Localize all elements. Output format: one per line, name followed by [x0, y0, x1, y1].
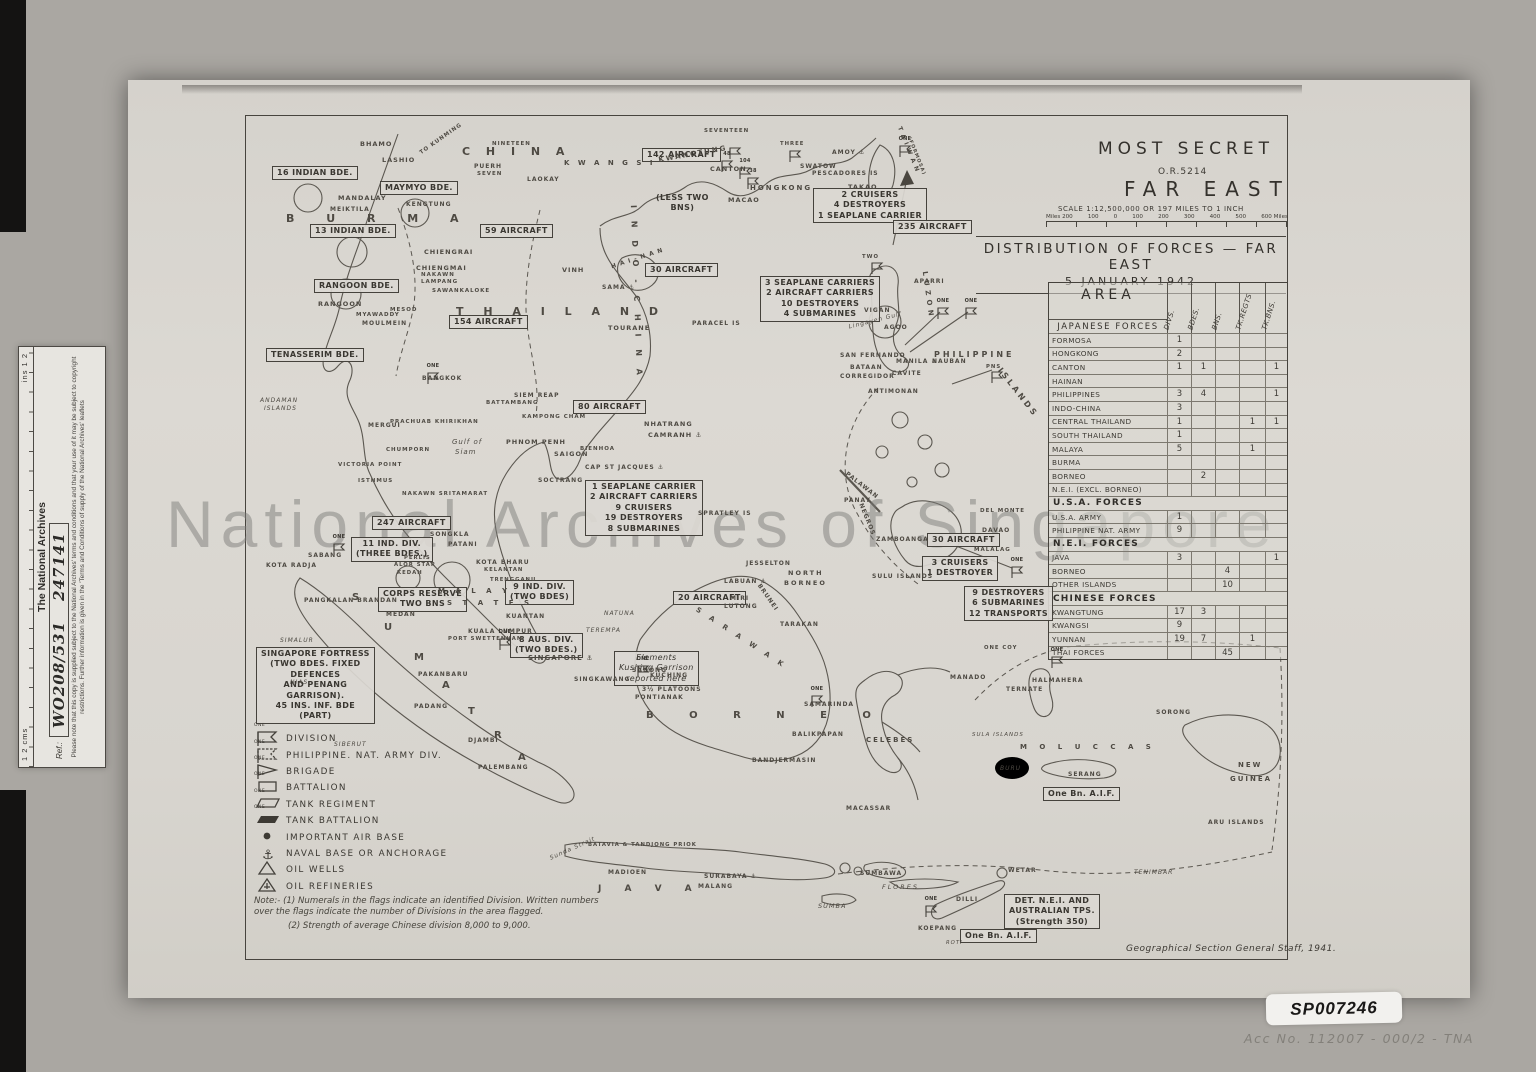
unit-flag: ONE — [1046, 648, 1068, 672]
place-label: Gulf of — [452, 438, 482, 446]
value-cell — [1265, 334, 1287, 347]
map-annotation: One Bn. A.I.F. — [1043, 787, 1120, 801]
place-label: KUCHING — [650, 672, 688, 679]
area-cell: HAINAN — [1049, 377, 1167, 386]
note-text: Note:- (1) Numerals in the flags indicat… — [254, 896, 599, 919]
area-cell: MALAYA — [1049, 445, 1167, 454]
place-label: U — [384, 622, 393, 633]
unit-flag: ONE — [328, 535, 350, 559]
value-cell: 5 — [1167, 443, 1191, 456]
place-label: NINETEEN — [492, 141, 531, 147]
place-label: NAUBAN — [932, 358, 967, 365]
legend-symbol-tag: ONE — [254, 772, 265, 777]
place-label: NHATRANG — [644, 420, 693, 428]
scale-tick: 600 Miles — [1261, 214, 1288, 220]
place-label: LUTONG — [724, 603, 758, 610]
map-subtitle: DISTRIBUTION OF FORCES — FAR EAST — [976, 241, 1286, 273]
table-row: OTHER ISLANDS10 — [1049, 578, 1287, 592]
flag-icon — [920, 902, 942, 921]
section-header-cell: N.E.I. FORCES — [1049, 539, 1287, 549]
place-label: WETAR — [1008, 867, 1037, 874]
area-cell: OTHER ISLANDS — [1049, 580, 1167, 589]
value-cell: 1 — [1167, 511, 1191, 524]
japanese-forces-header: JAPANESE FORCES — [1049, 319, 1167, 333]
flag-icon — [986, 368, 1008, 387]
area-cell: YUNNAN — [1049, 635, 1167, 644]
ref-value-box: WO208/531 247141 — [49, 523, 69, 737]
map-annotation: 2 CRUISERS4 DESTROYERS1 SEAPLANE CARRIER — [813, 188, 927, 223]
note-text: (2) Strength of average Chinese division… — [254, 921, 599, 932]
place-label: SIEM REAP — [514, 392, 559, 399]
place-label: NEW — [1238, 761, 1262, 769]
place-label: M O L U C C A S — [1020, 743, 1156, 751]
value-cell — [1191, 511, 1215, 524]
flag-icon — [866, 259, 888, 278]
value-cell — [1265, 402, 1287, 415]
section-header-cell: U.S.A. FORCES — [1049, 498, 1287, 508]
place-label: SOCTRANG — [538, 477, 583, 484]
value-cell — [1265, 565, 1287, 578]
value-cell: 9 — [1167, 524, 1191, 537]
value-cell — [1191, 484, 1215, 497]
place-label: Siam — [455, 448, 477, 456]
place-label: SUMBA — [818, 902, 846, 910]
map-annotation: 3 SEAPLANE CARRIERS2 AIRCRAFT CARRIERS10… — [760, 276, 880, 322]
place-label: KENGTUNG — [406, 201, 452, 208]
place-label: SIMALUR — [280, 637, 314, 644]
flag-icon — [932, 304, 954, 323]
place-label: KAMPONG CHAM — [522, 414, 586, 420]
ruler-cms: 1 2 cms — [20, 728, 33, 761]
legend-symbol-tag: ONE — [254, 805, 265, 810]
place-label: CORREGIDOR — [840, 373, 895, 380]
place-label: S T A T E S — [447, 599, 533, 607]
map-annotation: 13 INDIAN BDE. — [310, 224, 396, 238]
value-cell: 2 — [1167, 348, 1191, 361]
place-label: KUANTAN — [506, 613, 545, 620]
place-label: 3½ PLATOONS — [642, 686, 702, 693]
area-cell: N.E.I. (EXCL. BORNEO) — [1049, 485, 1167, 494]
value-cell — [1215, 429, 1239, 442]
place-label: VINH — [562, 266, 584, 274]
table-row: N.E.I. (EXCL. BORNEO) — [1049, 483, 1287, 497]
value-cell — [1167, 484, 1191, 497]
place-label: SONGKLA — [430, 531, 469, 538]
unit-flag: ONE — [422, 364, 444, 388]
map-annotation: 30 AIRCRAFT — [645, 263, 718, 277]
place-label: KOEPANG — [918, 925, 957, 932]
scale-tick: 300 — [1184, 214, 1195, 220]
value-cell — [1215, 402, 1239, 415]
place-label: PONTIANAK — [635, 694, 684, 701]
value-cell: 10 — [1215, 579, 1239, 592]
unit-flag: ONE — [1006, 558, 1028, 582]
place-label: PUERH — [474, 163, 502, 170]
place-label: BURU — [1000, 765, 1021, 772]
place-label: PAKANBARU — [418, 671, 469, 678]
place-label: ZAMBOANGA — [876, 536, 929, 543]
value-cell: 19 — [1167, 633, 1191, 646]
value-cell: 1 — [1265, 416, 1287, 429]
ref-value-2: 247141 — [50, 532, 68, 601]
map-credit: Geographical Section General Staff, 1941… — [1126, 944, 1336, 954]
scale-tick: 500 — [1235, 214, 1246, 220]
area-header: AREA — [1049, 283, 1167, 303]
place-label: CELEBES — [866, 736, 914, 744]
value-cell — [1265, 524, 1287, 537]
map-annotation: 3 CRUISERS1 DESTROYER — [922, 556, 998, 581]
place-label: T — [468, 706, 476, 717]
place-label: DJAMBI — [468, 737, 499, 744]
classification-heading: MOST SECRET — [1098, 139, 1274, 159]
flag-icon — [494, 635, 516, 654]
map-annotation: 9 DESTROYERS6 SUBMARINES12 TRANSPORTS — [964, 586, 1053, 621]
place-label: SINGAPORE ⚓ — [528, 654, 594, 662]
place-label: MOULMEIN — [362, 320, 407, 327]
legend-symbol-tag: ONE — [254, 756, 265, 761]
place-label: SULU ISLANDS — [872, 573, 933, 580]
value-cell — [1215, 524, 1239, 537]
legend-item-label: BATTALION — [286, 783, 347, 793]
area-cell: HONGKONG — [1049, 349, 1167, 358]
value-cell — [1239, 388, 1265, 401]
area-cell: PHILIPPINE NAT. ARMY — [1049, 526, 1167, 535]
value-cell — [1215, 416, 1239, 429]
place-label: BORNEO — [784, 579, 827, 587]
value-cell — [1239, 361, 1265, 374]
table-row: BORNEO4 — [1049, 564, 1287, 578]
place-label: SERANG — [1068, 771, 1102, 778]
scale-tick: Miles 200 — [1046, 214, 1073, 220]
place-label: MALANG — [698, 883, 733, 890]
map-annotation: 16 INDIAN BDE. — [272, 166, 358, 180]
table-row: KWANGTUNG173 — [1049, 605, 1287, 619]
place-label: DILLI — [956, 896, 978, 903]
scale-bar: Miles 2001000100200300400500600 Miles — [1046, 214, 1288, 227]
place-label: SEVENTEEN — [704, 128, 749, 134]
place-label: BIENHOA — [580, 446, 615, 452]
table-row: HAINAN — [1049, 374, 1287, 388]
value-cell — [1265, 456, 1287, 469]
scale-tick: 200 — [1158, 214, 1169, 220]
value-cell — [1215, 361, 1239, 374]
unit-flag — [866, 259, 888, 278]
place-label: KOTA RADJA — [266, 562, 317, 569]
place-label: LASHIO — [382, 156, 415, 164]
place-label: PESCADORES IS — [812, 170, 879, 177]
value-cell: 1 — [1265, 552, 1287, 565]
value-cell: 1 — [1265, 361, 1287, 374]
place-label: BANDJERMASIN — [752, 757, 816, 764]
value-cell: 1 — [1167, 416, 1191, 429]
value-cell: 17 — [1167, 606, 1191, 619]
unit-flag: ONE — [494, 630, 516, 654]
value-cell — [1215, 334, 1239, 347]
value-cell — [1215, 606, 1239, 619]
place-label: ISLANDS — [264, 405, 297, 412]
flag-icon — [328, 540, 350, 559]
scale-tick: 100 — [1132, 214, 1143, 220]
value-cell — [1239, 647, 1265, 660]
ref-label: Ref.: — [55, 742, 64, 759]
scanned-map-document: National Archives of Singapore MOST SECR… — [0, 0, 1536, 1072]
place-label: SAWANKALOKE — [432, 288, 490, 294]
place-label: SINGKAWANG — [574, 676, 630, 683]
place-label: MADIOEN — [608, 869, 647, 876]
value-cell — [1239, 552, 1265, 565]
place-label: MANADO — [950, 674, 986, 681]
table-row: INDO-CHINA3 — [1049, 401, 1287, 415]
legend-symbol-tag: ONE — [254, 789, 265, 794]
area-cell: FORMOSA — [1049, 336, 1167, 345]
table-row: CHINESE FORCES — [1049, 591, 1287, 605]
value-cell — [1239, 619, 1265, 632]
area-cell: CENTRAL THAILAND — [1049, 417, 1167, 426]
place-label: SIBERUT — [334, 741, 367, 748]
place-label: GUINEA — [1230, 775, 1272, 783]
unit-flag: ONE — [932, 299, 954, 323]
value-cell: 1 — [1239, 443, 1265, 456]
value-cell: 1 — [1167, 361, 1191, 374]
scale-tick: 100 — [1088, 214, 1099, 220]
value-cell: 2 — [1191, 470, 1215, 483]
value-cell — [1239, 484, 1265, 497]
value-cell: 4 — [1191, 388, 1215, 401]
column-header: TK.BNS. — [1265, 283, 1287, 333]
map-annotation: 80 AIRCRAFT — [573, 400, 646, 414]
value-cell: 1 — [1239, 416, 1265, 429]
legend-item-label: IMPORTANT AIR BASE — [286, 833, 405, 843]
place-label: KELANTAN — [484, 567, 523, 573]
value-cell: 1 — [1191, 361, 1215, 374]
ruler-ins: ins 1 2 — [20, 353, 33, 382]
ref-value: WO208/531 — [50, 621, 68, 728]
place-label: CAVITE — [892, 370, 922, 377]
unit-flag: ONE — [920, 897, 942, 921]
value-cell — [1167, 470, 1191, 483]
area-cell: PHILIPPINES — [1049, 390, 1167, 399]
value-cell — [1215, 348, 1239, 361]
place-label: TOURANE — [608, 324, 650, 332]
place-label: SULA ISLANDS — [972, 732, 1024, 738]
place-label: MACAO — [728, 196, 760, 204]
place-label: PRACHUAB KHIRIKHAN — [390, 419, 479, 425]
value-cell — [1265, 443, 1287, 456]
scan-crease — [182, 85, 1302, 94]
map-annotation: 59 AIRCRAFT — [480, 224, 553, 238]
unit-flag — [784, 147, 806, 166]
value-cell — [1215, 456, 1239, 469]
table-row: FORMOSA1 — [1049, 333, 1287, 347]
place-label: NORTH — [788, 569, 824, 577]
legend-item-label: PHILIPPINE. NAT. ARMY DIV. — [286, 751, 442, 761]
value-cell — [1191, 619, 1215, 632]
area-header-cell: AREA JAPANESE FORCES — [1049, 283, 1167, 333]
value-cell — [1265, 647, 1287, 660]
place-label: BATTAMBANG — [486, 400, 539, 406]
value-cell — [1239, 402, 1265, 415]
value-cell — [1191, 348, 1215, 361]
legend-item-label: TANK BATTALION — [286, 816, 380, 826]
value-cell: 1 — [1239, 633, 1265, 646]
place-label: SPRATLEY IS — [698, 510, 752, 517]
section-header-cell: CHINESE FORCES — [1049, 594, 1287, 604]
value-cell — [1215, 388, 1239, 401]
value-cell: 3 — [1167, 388, 1191, 401]
value-cell — [1191, 524, 1215, 537]
table-row: KWANGSI9 — [1049, 618, 1287, 632]
archive-ruler: 1 2 cms ins 1 2 — [19, 347, 34, 767]
value-cell: 9 — [1167, 619, 1191, 632]
table-row: SOUTH THAILAND1 — [1049, 428, 1287, 442]
place-label: HALMAHERA — [1032, 677, 1084, 684]
value-cell — [1239, 511, 1265, 524]
value-cell — [1215, 470, 1239, 483]
value-cell — [1239, 606, 1265, 619]
flag-icon — [784, 147, 806, 166]
value-cell — [1265, 579, 1287, 592]
legend-item-label: DIVISION — [286, 734, 337, 744]
value-cell — [1191, 429, 1215, 442]
place-label: ALOR STAR — [394, 562, 436, 568]
place-label: BATAAN — [850, 364, 883, 371]
map-legend: ONEDIVISIONONEPHILIPPINE. NAT. ARMY DIV.… — [250, 731, 448, 895]
place-label: B U R M A — [286, 212, 473, 225]
value-cell — [1239, 456, 1265, 469]
legend-symbol-tag: ONE — [254, 740, 265, 745]
value-cell — [1265, 348, 1287, 361]
scale-bar-ticks: Miles 2001000100200300400500600 Miles — [1046, 214, 1288, 220]
value-cell — [1265, 470, 1287, 483]
value-cell — [1167, 579, 1191, 592]
place-label: PADANG — [414, 703, 448, 710]
place-label: MALALAG — [974, 547, 1011, 553]
place-label: PANAY — [844, 497, 871, 504]
place-label: J A V A — [598, 884, 702, 894]
value-cell — [1215, 619, 1239, 632]
value-cell: 1 — [1167, 429, 1191, 442]
table-row: U.S.A. ARMY1 — [1049, 510, 1287, 524]
archive-title: The National Archives — [36, 347, 48, 767]
value-cell: 1 — [1265, 388, 1287, 401]
archive-ref-line: Ref.: WO208/531 247141 — [49, 355, 69, 759]
flag-icon — [960, 304, 982, 323]
place-label: A — [442, 680, 451, 691]
value-cell: 7 — [1191, 633, 1215, 646]
place-label: PARACEL IS — [692, 320, 741, 327]
value-cell — [1191, 565, 1215, 578]
value-cell — [1265, 511, 1287, 524]
place-label: ISTHMUS — [358, 478, 393, 484]
archive-terms-text: Please note that this copy is supplied s… — [71, 353, 88, 761]
forces-table-header: AREA JAPANESE FORCES DIVS.BDES.BNS.TK.RE… — [1049, 283, 1287, 333]
place-label: MIRI — [730, 595, 749, 602]
value-cell — [1215, 633, 1239, 646]
value-cell — [1215, 552, 1239, 565]
place-label: BHAMO — [360, 140, 392, 148]
place-label: LAOKAY — [527, 176, 560, 183]
value-cell — [1215, 484, 1239, 497]
flag-icon — [632, 662, 654, 681]
value-cell — [1191, 402, 1215, 415]
legend-item: OIL REFINERIES — [250, 879, 448, 895]
table-row: HONGKONG2 — [1049, 347, 1287, 361]
place-label: NATUNA — [604, 610, 635, 617]
place-label: TRENGGANU — [490, 577, 536, 583]
place-label: KOTA BHARU — [476, 559, 530, 566]
value-cell — [1239, 348, 1265, 361]
place-label: PALEMBANG — [478, 764, 529, 771]
value-cell: 3 — [1167, 552, 1191, 565]
value-cell: 4 — [1215, 565, 1239, 578]
place-label: A — [518, 752, 527, 763]
legend-item-label: NAVAL BASE OR ANCHORAGE — [286, 849, 448, 859]
area-cell: U.S.A. ARMY — [1049, 513, 1167, 522]
table-row: MALAYA51 — [1049, 442, 1287, 456]
place-label: TEREMPA — [586, 627, 621, 634]
value-cell — [1265, 429, 1287, 442]
value-cell — [1265, 484, 1287, 497]
place-label: PANGKALAN BRANDAN — [304, 597, 398, 604]
table-row: U.S.A. FORCES — [1049, 496, 1287, 510]
legend-item-label: OIL WELLS — [286, 865, 345, 875]
place-label: K W A N G S I — [564, 159, 655, 167]
place-label: NAKAWN SRITAMARAT — [402, 491, 488, 497]
table-row: BORNEO2 — [1049, 469, 1287, 483]
flag-icon — [742, 174, 764, 193]
area-cell: JAVA — [1049, 553, 1167, 562]
map-notes: Note:- (1) Numerals in the flags indicat… — [254, 896, 599, 934]
unit-flag — [986, 368, 1008, 387]
legend-item-label: OIL REFINERIES — [286, 882, 374, 892]
accession-number-handwriting: Acc No. 112007 - 000/2 - TNA — [1244, 1031, 1474, 1046]
table-row: CENTRAL THAILAND111 — [1049, 415, 1287, 429]
area-cell: BORNEO — [1049, 567, 1167, 576]
table-row: PHILIPPINES341 — [1049, 387, 1287, 401]
place-label: MEDAN — [386, 611, 416, 618]
value-cell — [1191, 647, 1215, 660]
value-cell — [1265, 606, 1287, 619]
place-label: ANDAMAN — [260, 397, 298, 404]
place-label: KEDAH — [397, 570, 423, 576]
unit-flag: ONE — [960, 299, 982, 323]
table-row: CANTON111 — [1049, 360, 1287, 374]
place-label: VICTORIA POINT — [338, 462, 402, 468]
value-cell — [1167, 647, 1191, 660]
value-cell — [1167, 375, 1191, 388]
scale-text: SCALE 1:12,500,000 OR 197 MILES TO 1 INC… — [1058, 205, 1244, 213]
place-label: S — [352, 592, 360, 603]
place-label: BALIKPAPAN — [792, 731, 844, 738]
map-annotation: 235 AIRCRAFT — [893, 220, 972, 234]
legend-item-label: BRIGADE — [286, 767, 336, 777]
map-annotation: (LESS TWOBNS) — [652, 192, 713, 215]
place-label: MANDALAY — [338, 194, 387, 202]
place-label: CAP ST JACQUES ⚓ — [585, 464, 664, 471]
legend-item: IMPORTANT AIR BASE — [250, 829, 448, 845]
unit-flag: ONE — [632, 657, 654, 681]
map-annotation: 247 AIRCRAFT — [372, 516, 451, 530]
value-cell — [1167, 456, 1191, 469]
place-label: NAKAWN — [421, 272, 455, 278]
value-cell — [1191, 443, 1215, 456]
national-archives-label: 1 2 cms ins 1 2 The National Archives Re… — [18, 346, 106, 768]
value-cell — [1191, 579, 1215, 592]
place-label: TARAKAN — [780, 621, 819, 628]
place-label: CHUMPORN — [386, 447, 430, 453]
value-cell — [1239, 579, 1265, 592]
place-label: AGOO — [884, 324, 908, 331]
